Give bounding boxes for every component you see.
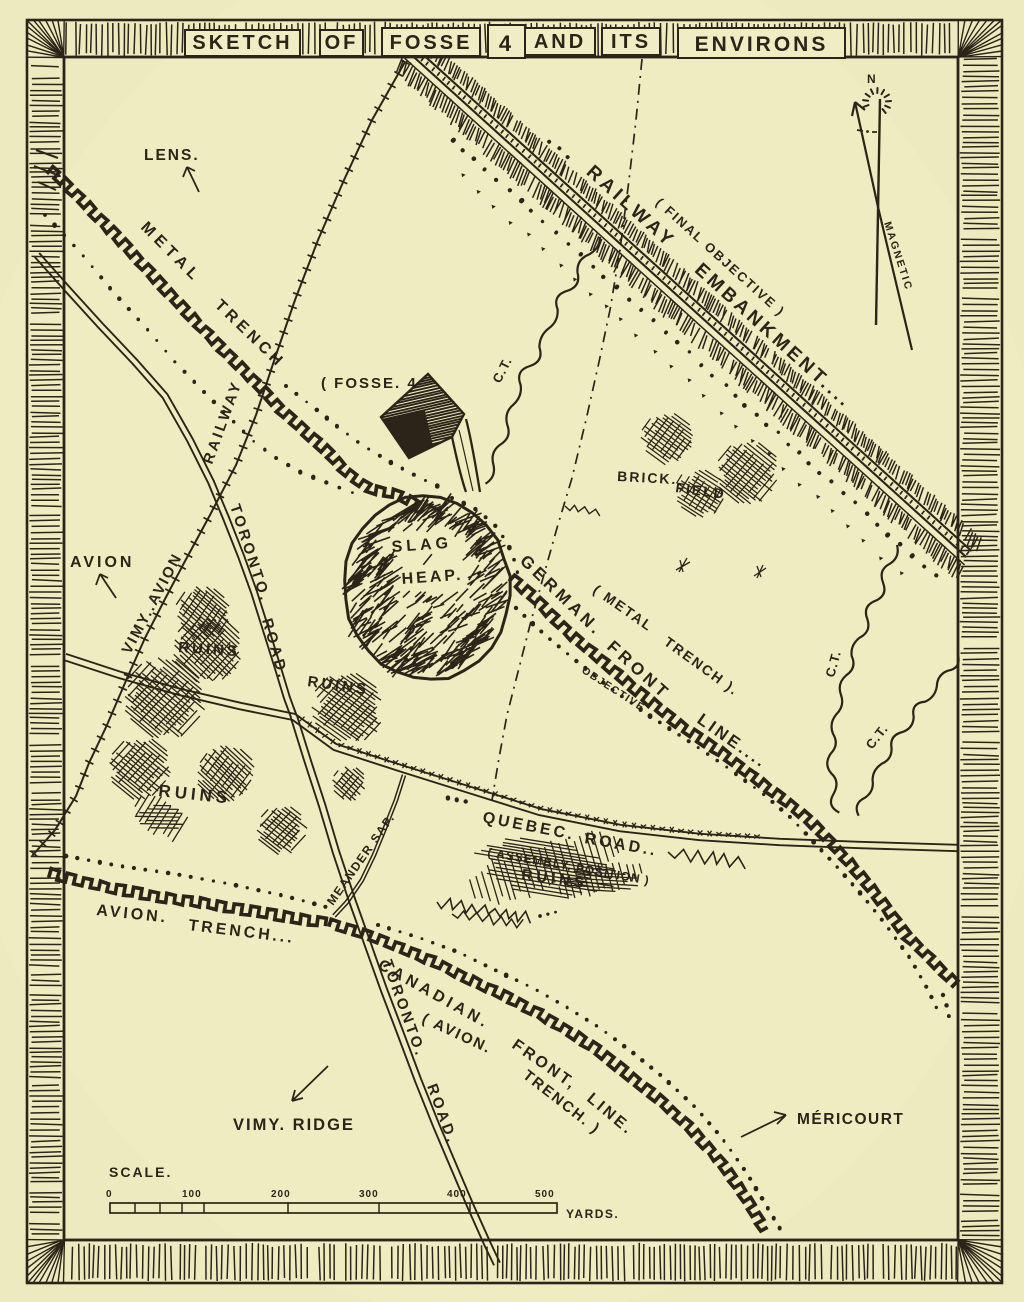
svg-text:FOSSE: FOSSE xyxy=(390,32,473,54)
svg-text:100: 100 xyxy=(182,1189,202,1200)
svg-text:200: 200 xyxy=(271,1189,291,1200)
svg-text:YARDS.: YARDS. xyxy=(566,1207,619,1221)
svg-text:N: N xyxy=(867,72,876,86)
svg-text:LENS.: LENS. xyxy=(144,147,200,164)
svg-text:VIMY. RIDGE: VIMY. RIDGE xyxy=(233,1116,355,1134)
svg-text:ENVIRONS: ENVIRONS xyxy=(695,33,829,56)
svg-text:ITS: ITS xyxy=(611,31,651,53)
svg-text:( FOSSE. 4: ( FOSSE. 4 xyxy=(321,375,418,392)
svg-text:BRICK.: BRICK. xyxy=(617,468,678,487)
svg-text:400: 400 xyxy=(447,1189,467,1200)
svg-text:SKETCH: SKETCH xyxy=(192,32,292,54)
svg-text:AND: AND xyxy=(534,31,586,53)
svg-text:300: 300 xyxy=(359,1189,379,1200)
svg-text:OF: OF xyxy=(325,32,359,54)
svg-text:AVION: AVION xyxy=(70,554,134,571)
svg-text:500: 500 xyxy=(535,1189,555,1200)
svg-text:MÉRICOURT: MÉRICOURT xyxy=(797,1111,904,1128)
svg-text:0: 0 xyxy=(106,1189,113,1200)
svg-text:4: 4 xyxy=(499,31,514,56)
svg-text:SCALE.: SCALE. xyxy=(109,1164,172,1180)
